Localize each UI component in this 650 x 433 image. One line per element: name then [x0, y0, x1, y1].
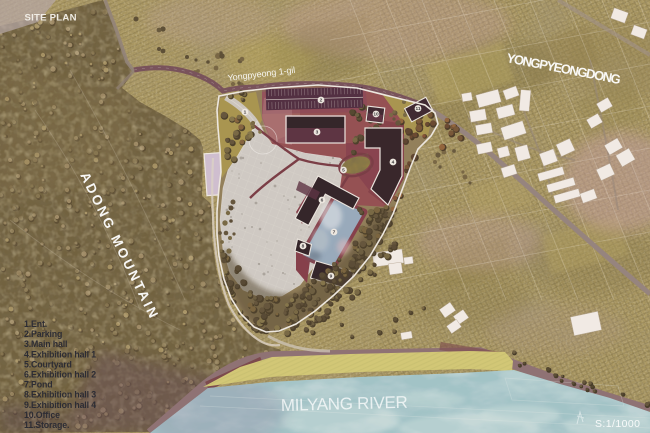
svg-text:6.Exhibition hall 2: 6.Exhibition hall 2 [24, 370, 96, 380]
svg-text:7.Pond: 7.Pond [24, 380, 52, 390]
svg-text:11.Storage.: 11.Storage. [24, 420, 69, 430]
svg-text:1.Ent.: 1.Ent. [24, 319, 47, 329]
svg-text:MILYANG RIVER: MILYANG RIVER [281, 393, 408, 415]
svg-text:4.Exhibition hall 1: 4.Exhibition hall 1 [24, 349, 96, 359]
svg-text:9.Exhibition hall 4: 9.Exhibition hall 4 [24, 400, 96, 410]
svg-text:10.Office: 10.Office [24, 410, 60, 420]
svg-text:S:1/1000: S:1/1000 [595, 418, 640, 430]
svg-text:8.Exhibition hall 3: 8.Exhibition hall 3 [24, 390, 96, 400]
svg-text:2.Parking: 2.Parking [24, 329, 62, 339]
svg-text:SITE PLAN: SITE PLAN [25, 13, 77, 24]
svg-text:3.Main hall: 3.Main hall [24, 339, 67, 349]
svg-text:5.Courtyard: 5.Courtyard [24, 359, 72, 369]
